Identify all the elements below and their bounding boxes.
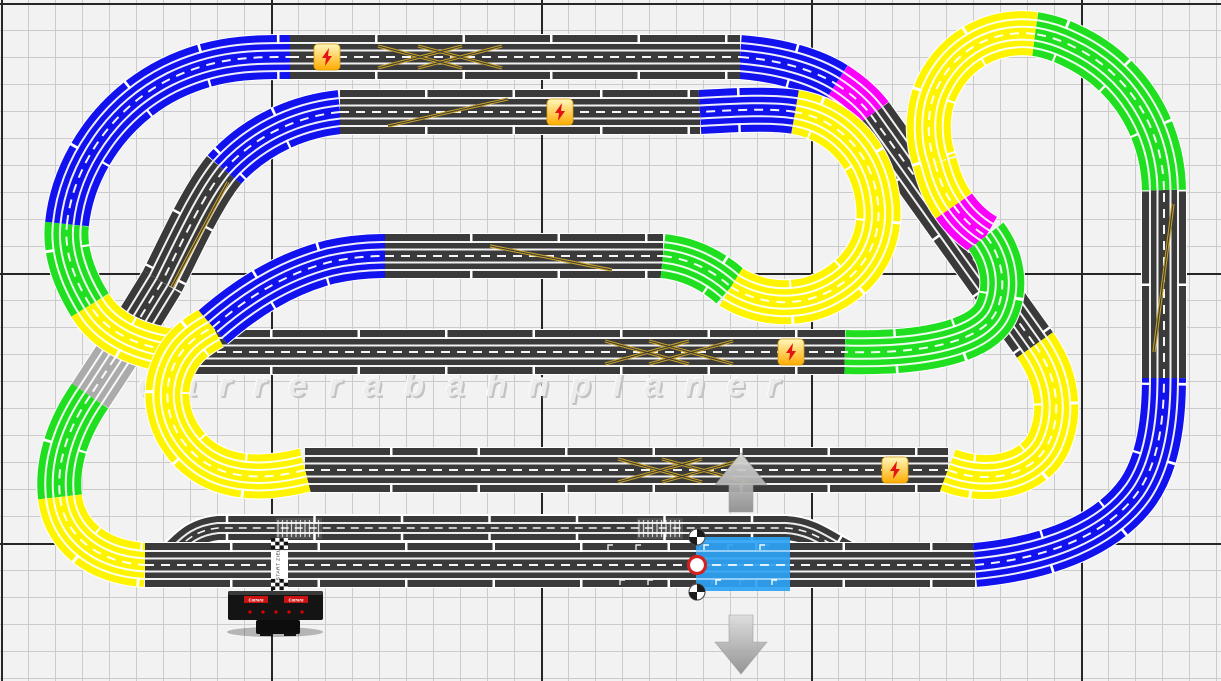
move-down-arrow[interactable] — [715, 615, 767, 674]
selected-track-piece[interactable] — [689, 529, 791, 600]
brand-logo: Carrera — [289, 597, 305, 602]
booster-piece[interactable] — [314, 44, 340, 70]
pit-box-marking — [637, 518, 683, 539]
track-chain-horseshoe-to-c[interactable] — [213, 256, 385, 327]
control-unit[interactable]: CarreraCarrera — [227, 591, 323, 637]
booster-piece[interactable] — [778, 339, 804, 365]
rotate-handle-bottom[interactable] — [689, 584, 705, 600]
track-layout: START ZIELCarreraCarrera — [0, 0, 1221, 681]
rotate-handle-top[interactable] — [689, 529, 705, 545]
pit-box-marking — [276, 518, 322, 539]
booster-piece[interactable] — [882, 457, 908, 483]
start-finish-piece-decals: START ZIEL — [271, 538, 288, 590]
svg-text:START ZIEL: START ZIEL — [276, 549, 282, 581]
track-chain-top-right-loop-yellow[interactable] — [929, 33, 1035, 163]
track-chain-middle-ring[interactable] — [663, 110, 879, 303]
booster-piece[interactable] — [547, 99, 573, 125]
track-chain-top-right-loop-green[interactable] — [1035, 34, 1164, 190]
brand-logo: Carrera — [249, 597, 265, 602]
track-planner-canvas[interactable]: carrerabahnplaner START ZIELCarreraCarre… — [0, 0, 1221, 681]
anchor-handle[interactable] — [689, 557, 706, 574]
selection-highlight[interactable] — [696, 537, 790, 591]
track-chain-right-inner-hairpin[interactable] — [948, 345, 1056, 477]
